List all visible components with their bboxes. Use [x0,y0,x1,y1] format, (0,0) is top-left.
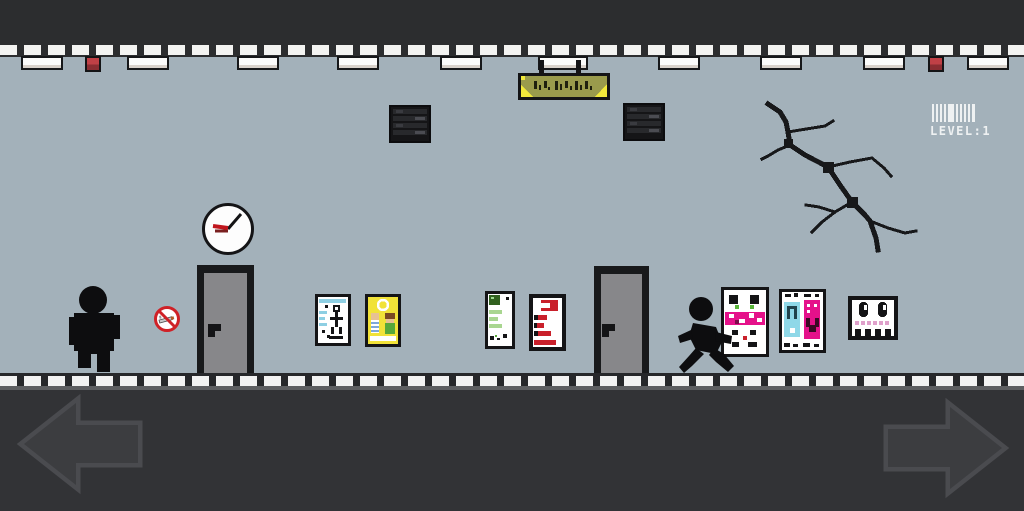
sign-glyphs [521,76,607,97]
game-stage: LEVEL:1 [0,0,1024,511]
barcode-icon [932,104,975,122]
poster-sunny [365,294,401,347]
running-character [676,292,740,378]
standing-character [66,284,128,374]
door-right [594,266,649,375]
hanging-sign [518,73,610,100]
ceiling-light [237,56,279,70]
poster-green-chart [485,291,515,349]
poster-red-list [529,294,566,351]
clock-hands [205,206,251,252]
skull-poster [848,296,898,340]
poster-stick-figure [315,294,351,346]
level-label: LEVEL:1 [930,124,991,138]
air-vent [623,103,665,141]
vending-machine-drinks [779,289,826,353]
fire-alarm-icon [928,56,944,72]
air-vent [389,105,431,143]
right-arrow-icon[interactable] [880,398,1012,500]
wall-crack [735,92,925,257]
ceiling-light [440,56,482,70]
floor-film-strip [0,373,1024,390]
ceiling-bar [0,0,1024,44]
ceiling-light [760,56,802,70]
fire-alarm-icon [85,56,101,72]
ceiling-light [337,56,379,70]
ceiling-light [21,56,63,70]
door-left [197,265,254,375]
ceiling-light [863,56,905,70]
wall-clock [202,203,254,255]
ceiling-light [658,56,700,70]
no-smoking-icon [153,305,181,333]
bottom-area [0,390,1024,511]
left-arrow-icon[interactable] [14,394,146,496]
ceiling-light [967,56,1009,70]
ceiling-light [127,56,169,70]
